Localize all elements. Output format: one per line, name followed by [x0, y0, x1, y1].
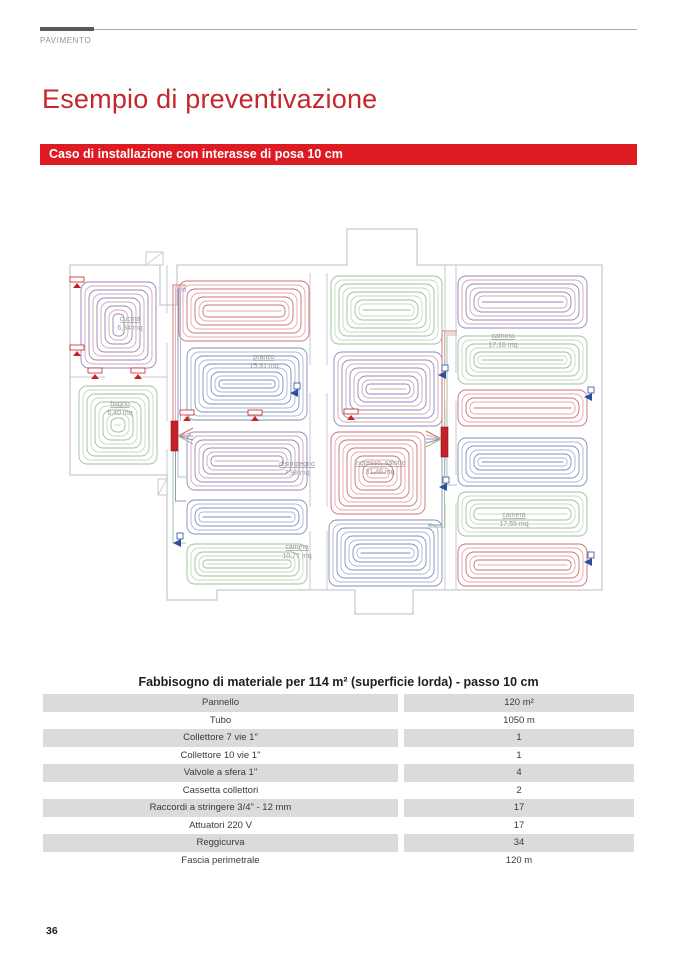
material-value: 1: [404, 747, 634, 765]
marker-icon: [73, 351, 81, 356]
material-value: 1050 m: [404, 712, 634, 730]
case-banner: Caso di installazione con interasse di p…: [40, 144, 637, 165]
valve-tag: [442, 365, 448, 371]
valve-icon: [584, 393, 592, 401]
heating-coil: [458, 276, 587, 328]
valve-tag: [588, 552, 594, 558]
material-value: 4: [404, 764, 634, 782]
floorplan-diagram: cucina6,84 mqbagno6,40 mqpranzo15,91 mqd…: [55, 225, 620, 635]
heating-coil: [329, 520, 442, 586]
table-row: Collettore 10 vie 1"1: [43, 747, 634, 765]
material-label: Collettore 7 vie 1": [43, 729, 398, 747]
material-value: 120 m: [404, 852, 634, 870]
table-row: Raccordi a stringere 3/4" - 12 mm17: [43, 799, 634, 817]
room-label: camera17,16 mq: [488, 333, 517, 349]
page-title: Esempio di preventivazione: [42, 84, 377, 115]
manifold-pipe-fan: [178, 436, 193, 440]
material-label: Pannello: [43, 694, 398, 712]
valve-tag: [588, 387, 594, 393]
marker-tag: [344, 409, 358, 414]
material-label: Cassetta collettori: [43, 782, 398, 800]
material-label: Collettore 10 vie 1": [43, 747, 398, 765]
table-row: Cassetta collettori2: [43, 782, 634, 800]
heating-coil: [458, 390, 587, 426]
table-row: Pannello120 m²: [43, 694, 634, 712]
page: PAVIMENTO Esempio di preventivazione Cas…: [0, 0, 678, 959]
table-row: Collettore 7 vie 1"1: [43, 729, 634, 747]
marker-tag: [248, 410, 262, 415]
marker-tag: [70, 345, 84, 350]
heating-coil: [458, 544, 587, 586]
marker-icon: [73, 283, 81, 288]
heating-coil: [331, 276, 442, 344]
table-row: Valvole a sfera 1"4: [43, 764, 634, 782]
material-value: 34: [404, 834, 634, 852]
material-value: 2: [404, 782, 634, 800]
material-label: Valvole a sfera 1": [43, 764, 398, 782]
heating-coil: [458, 438, 587, 486]
rule-accent: [40, 27, 94, 31]
heating-coil: [187, 500, 307, 534]
heating-coil: [334, 352, 442, 426]
material-label: Reggicurva: [43, 834, 398, 852]
table-row: Tubo1050 m: [43, 712, 634, 730]
manifold-pipe-fan: [178, 428, 193, 436]
valve-icon: [584, 558, 592, 566]
supply-pipe: [176, 451, 187, 501]
case-banner-text: Caso di installazione con interasse di p…: [40, 144, 637, 165]
marker-tag: [70, 277, 84, 282]
marker-tag: [131, 368, 145, 373]
valve-icon: [439, 483, 447, 491]
heating-coil: [187, 348, 307, 420]
material-value: 120 m²: [404, 694, 634, 712]
heating-coil: [458, 336, 587, 384]
manifold-pipe-fan: [426, 439, 441, 447]
room-label: cucina6,84 mq: [117, 316, 142, 332]
marker-tag: [88, 368, 102, 373]
valve-tag: [177, 533, 183, 539]
material-label: Attuatori 220 V: [43, 817, 398, 835]
material-label: Tubo: [43, 712, 398, 730]
room-label: bagno6,40 mq: [107, 401, 132, 417]
marker-icon: [251, 416, 259, 421]
table-row: Fascia perimetrale120 m: [43, 852, 634, 870]
materials-table-title: Fabbisogno di materiale per 114 m² (supe…: [40, 675, 637, 689]
supply-pipe: [428, 457, 442, 525]
heating-coil: [179, 281, 309, 341]
valve-tag: [294, 383, 300, 389]
room-label: pranzo15,91 mq: [249, 354, 278, 370]
material-label: Fascia perimetrale: [43, 852, 398, 870]
manifold-pipe-fan: [426, 435, 441, 439]
material-value: 17: [404, 817, 634, 835]
material-value: 1: [404, 729, 634, 747]
valve-tag: [443, 477, 449, 483]
valve-icon: [173, 539, 181, 547]
manifold: [171, 421, 178, 451]
manifold-pipe-fan: [178, 432, 193, 436]
manifold-pipe-fan: [426, 431, 441, 439]
supply-pipe: [178, 451, 186, 477]
marker-tag: [180, 410, 194, 415]
supply-pipe: [445, 333, 458, 427]
section-label: PAVIMENTO: [40, 36, 91, 45]
supply-pipe: [173, 451, 186, 543]
material-label: Raccordi a stringere 3/4" - 12 mm: [43, 799, 398, 817]
top-rule: [40, 29, 637, 30]
materials-table: Pannello120 m²Tubo1050 mCollettore 7 vie…: [43, 694, 634, 869]
manifold: [441, 427, 448, 457]
heating-coil: [79, 386, 157, 464]
material-value: 17: [404, 799, 634, 817]
manifold-pipe-fan: [426, 439, 441, 443]
page-number: 36: [46, 925, 58, 937]
table-row: Attuatori 220 V17: [43, 817, 634, 835]
manifold-pipe-fan: [178, 436, 193, 444]
table-row: Reggicurva34: [43, 834, 634, 852]
